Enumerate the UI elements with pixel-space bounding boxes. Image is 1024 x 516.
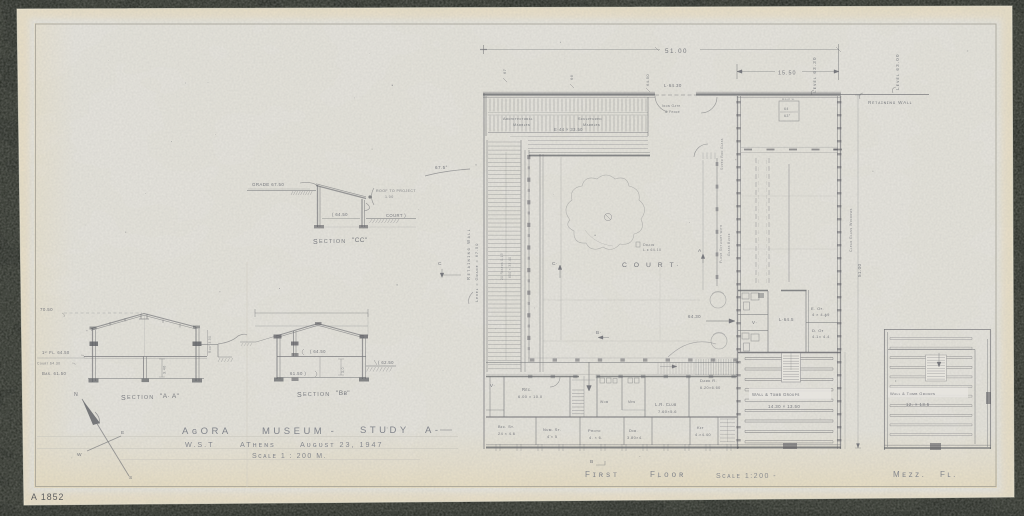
svg-text:12. × 13.5: 12. × 13.5 xyxy=(906,402,930,407)
svg-text:S: S xyxy=(297,392,302,399)
svg-text:3.0: 3.0 xyxy=(341,367,345,373)
svg-text:B: B xyxy=(590,459,594,465)
svg-text:Pʜᴏᴛᴏ: Pʜᴏᴛᴏ xyxy=(588,428,601,433)
svg-text:( 64.50: ( 64.50 xyxy=(332,212,348,217)
svg-text:Sᴄᴀʟᴇ 1 : 200 M.: Sᴄᴀʟᴇ 1 : 200 M. xyxy=(252,453,327,460)
svg-text:S: S xyxy=(313,239,318,246)
svg-text:C O U R T·: C O U R T· xyxy=(622,262,681,269)
svg-text:E·44 × 33.50: E·44 × 33.50 xyxy=(554,127,583,132)
svg-text:& Fᴇɴᴄᴇ: & Fᴇɴᴄᴇ xyxy=(664,110,680,114)
svg-text:14.30 × 13.50: 14.30 × 13.50 xyxy=(768,404,800,409)
svg-text:"A· A": "A· A" xyxy=(160,393,180,400)
svg-text:4.×4.40: 4.×4.40 xyxy=(695,432,711,437)
svg-text:24 × 4.6: 24 × 4.6 xyxy=(498,431,515,436)
svg-text:S: S xyxy=(129,475,133,481)
svg-text:67.5°: 67.5° xyxy=(435,165,448,170)
svg-text:C: C xyxy=(438,261,442,267)
svg-text:A: A xyxy=(698,248,702,254)
svg-text:Sᴄᴀʟᴇ 1:200 -: Sᴄᴀʟᴇ 1:200 - xyxy=(716,473,777,480)
svg-text:Bᴀs. 61.50: Bᴀs. 61.50 xyxy=(42,371,66,376)
svg-text:4. × 6.: 4. × 6. xyxy=(589,435,603,440)
svg-text:Rᴇᴛᴀɪɴɪɴɢ Wᴀʟʟ: Rᴇᴛᴀɪɴɪɴɢ Wᴀʟʟ xyxy=(466,228,471,280)
svg-text:4 × 4.ɸ9: 4 × 4.ɸ9 xyxy=(812,312,830,317)
svg-text:6.00 × 10.0: 6.00 × 10.0 xyxy=(518,394,543,399)
svg-text:Sᴜᴘᴇʀ Rᴏᴅ Gʟᴀss: Sᴜᴘᴇʀ Rᴏᴅ Gʟᴀss xyxy=(720,138,724,170)
svg-text:64.30: 64.30 xyxy=(688,314,701,319)
svg-text:1.00: 1.00 xyxy=(385,195,394,199)
svg-text:6.20×6.60: 6.20×6.60 xyxy=(700,386,721,390)
svg-text:"CC": "CC" xyxy=(352,237,368,244)
svg-text:ROOF TO PROJECT: ROOF TO PROJECT xyxy=(376,189,416,193)
svg-text:V·: V· xyxy=(490,383,495,388)
svg-text:Wᴀʟʟ & Tᴏᴍʙ Gʀᴏᴜᴘs: Wᴀʟʟ & Tᴏᴍʙ Gʀᴏᴜᴘs xyxy=(890,391,935,396)
svg-text:Nᴜᴍ. Sᴛ.: Nᴜᴍ. Sᴛ. xyxy=(543,427,561,432)
svg-text:A 1852: A 1852 xyxy=(31,492,64,502)
svg-text:Mᴇᴢᴢ.: Mᴇᴢᴢ. xyxy=(893,470,926,479)
svg-text:Gʟᴀss Bʟᴏᴄᴋ: Gʟᴀss Bʟᴏᴄᴋ xyxy=(727,233,731,256)
svg-text:D. Oғ: D. Oғ xyxy=(812,328,824,333)
svg-text:W.S.T: W.S.T xyxy=(185,440,215,449)
svg-text:Mᴀʀʙʟᴇs: Mᴀʀʙʟᴇs xyxy=(583,123,600,127)
svg-text:ATʜᴇɴs: ATʜᴇɴs xyxy=(240,440,276,449)
svg-text:67: 67 xyxy=(502,68,507,74)
svg-text:L.R. Cʟᴜʙ: L.R. Cʟᴜʙ xyxy=(655,402,677,407)
svg-text:Mᴀʀʙʟᴇs: Mᴀʀʙʟᴇs xyxy=(513,123,530,127)
svg-text:B·: B· xyxy=(596,330,601,335)
svg-text:E. Oғ.: E. Oғ. xyxy=(811,306,824,311)
svg-text:COURT ): COURT ) xyxy=(386,213,406,218)
svg-text:Dᴀʀᴋ R.: Dᴀʀᴋ R. xyxy=(700,378,717,383)
svg-text:51.00: 51.00 xyxy=(857,263,862,277)
svg-text:3.40: 3.40 xyxy=(163,365,167,374)
svg-text:AɢORA: AɢORA xyxy=(182,426,232,437)
svg-text:Aʀᴄʜɪᴛᴇᴄᴛᴜʀᴀʟ: Aʀᴄʜɪᴛᴇᴄᴛᴜʀᴀʟ xyxy=(503,117,533,121)
svg-text:Sᴄᴜʟᴘᴛᴜʀᴇᴅ: Sᴄᴜʟᴘᴛᴜʀᴇᴅ xyxy=(578,117,602,121)
svg-text:ECTION: ECTION xyxy=(127,395,154,401)
svg-text:L.ᴋ 64.10: L.ᴋ 64.10 xyxy=(643,248,661,252)
svg-text:Fʟᴏᴏʀ: Fʟᴏᴏʀ xyxy=(650,470,686,479)
svg-text:E: E xyxy=(121,430,125,436)
svg-text:Dɪʀ.: Dɪʀ. xyxy=(629,428,638,433)
svg-text:51.00: 51.00 xyxy=(665,48,688,55)
svg-text:61.50 ): 61.50 ) xyxy=(290,371,306,376)
svg-text:7.60×5.6: 7.60×5.6 xyxy=(658,409,677,414)
svg-text:64.50: 64.50 xyxy=(645,74,650,86)
svg-text:W: W xyxy=(77,452,82,458)
svg-text:1ˢᵗ Fʟ. 64.50: 1ˢᵗ Fʟ. 64.50 xyxy=(42,350,70,355)
svg-text:20 Rɪsᴇʀs 0.15: 20 Rɪsᴇʀs 0.15 xyxy=(500,253,504,280)
svg-text:Aᴜɢᴜsᴛ 23, 1947: Aᴜɢᴜsᴛ 23, 1947 xyxy=(300,440,384,449)
svg-text:S: S xyxy=(121,395,126,402)
svg-text:ECTION: ECTION xyxy=(319,239,346,245)
svg-text:4ʹ× 5: 4ʹ× 5 xyxy=(547,434,557,439)
svg-text:Lᴇᴠᴇʟ 63.00: Lᴇᴠᴇʟ 63.00 xyxy=(895,53,900,90)
svg-text:Dʀᴀɪɴ: Dʀᴀɪɴ xyxy=(643,243,655,247)
svg-text:Fʟᴜsʜ Sᴋʏʟɪɢʜᴛ ᴡɪᴛʜ: Fʟᴜsʜ Sᴋʏʟɪɢʜᴛ ᴡɪᴛʜ xyxy=(719,225,723,263)
svg-text:MUSEUM -: MUSEUM - xyxy=(262,426,337,437)
svg-text:600 × 33.40: 600 × 33.40 xyxy=(508,257,512,278)
svg-text:Wᴏᴍ: Wᴏᴍ xyxy=(600,400,609,404)
svg-text:Lᴇᴠᴇʟ = Gʀᴀᴅᴇ = 67.50: Lᴇᴠᴇʟ = Gʀᴀᴅᴇ = 67.50 xyxy=(474,243,479,302)
svg-text:3.80×4.: 3.80×4. xyxy=(627,435,643,440)
svg-text:70.50: 70.50 xyxy=(40,307,53,312)
svg-text:Cʟᴇᴀʀ Gʟᴀss Wɪɴᴅᴏᴡs: Cʟᴇᴀʀ Gʟᴀss Wɪɴᴅᴏᴡs xyxy=(849,208,853,252)
svg-text:( 62.50: ( 62.50 xyxy=(378,360,394,365)
svg-text:15.50: 15.50 xyxy=(778,71,797,77)
svg-text:L·64.30: L·64.30 xyxy=(664,83,682,88)
svg-text:L·64.5: L·64.5 xyxy=(779,317,794,322)
svg-text:Rᴏᴏᶠ 3.50: Rᴏᴏᶠ 3.50 xyxy=(208,336,212,353)
svg-text:64: 64 xyxy=(784,107,789,111)
svg-text:N: N xyxy=(74,392,78,398)
svg-text:Hᴇᴀᴅ ᴡ.: Hᴇᴀᴅ ᴡ. xyxy=(782,97,795,101)
svg-text:63°: 63° xyxy=(784,114,791,118)
svg-text:Bɪᴄ. Sᴛ.: Bɪᴄ. Sᴛ. xyxy=(498,424,515,429)
svg-text:A-: A- xyxy=(425,425,442,436)
svg-text:Fʟ.: Fʟ. xyxy=(940,470,958,479)
svg-text:Mᴇɴ: Mᴇɴ xyxy=(628,400,636,404)
svg-text:"Bʙ": "Bʙ" xyxy=(336,390,350,397)
svg-text:Iʀᴏɴ Gᴀᴛᴇ: Iʀᴏɴ Gᴀᴛᴇ xyxy=(662,104,681,108)
svg-text:C·: C· xyxy=(552,261,558,267)
svg-text:Rᴇᴄ.: Rᴇᴄ. xyxy=(522,387,532,392)
svg-text:Kɪᴛ: Kɪᴛ xyxy=(697,425,704,430)
svg-text:V·: V· xyxy=(752,320,757,325)
svg-text:4.1× 4.4: 4.1× 4.4 xyxy=(812,334,830,339)
svg-text:( 64.50: ( 64.50 xyxy=(310,349,326,354)
svg-text:Fɪʀsᴛ: Fɪʀsᴛ xyxy=(585,470,620,479)
svg-text:Cᴏᴜʀᴛ 64.30: Cᴏᴜʀᴛ 64.30 xyxy=(37,362,60,366)
svg-text:ECTION: ECTION xyxy=(303,392,330,398)
svg-text:GRADE 67.50: GRADE 67.50 xyxy=(252,182,284,187)
svg-text:66: 66 xyxy=(569,74,574,80)
svg-text:WAʟʟ & Tᴏᴍʙ Gʀᴏᴜᴘs: WAʟʟ & Tᴏᴍʙ Gʀᴏᴜᴘs xyxy=(752,392,800,397)
svg-text:STUDY: STUDY xyxy=(360,425,410,436)
svg-text:Rᴇᴛᴀɪɴɪɴɢ WAʟʟ: Rᴇᴛᴀɪɴɪɴɢ WAʟʟ xyxy=(868,100,912,105)
svg-text:Lᴇᴠᴇʟ 63.30: Lᴇᴠᴇʟ 63.30 xyxy=(812,56,817,93)
